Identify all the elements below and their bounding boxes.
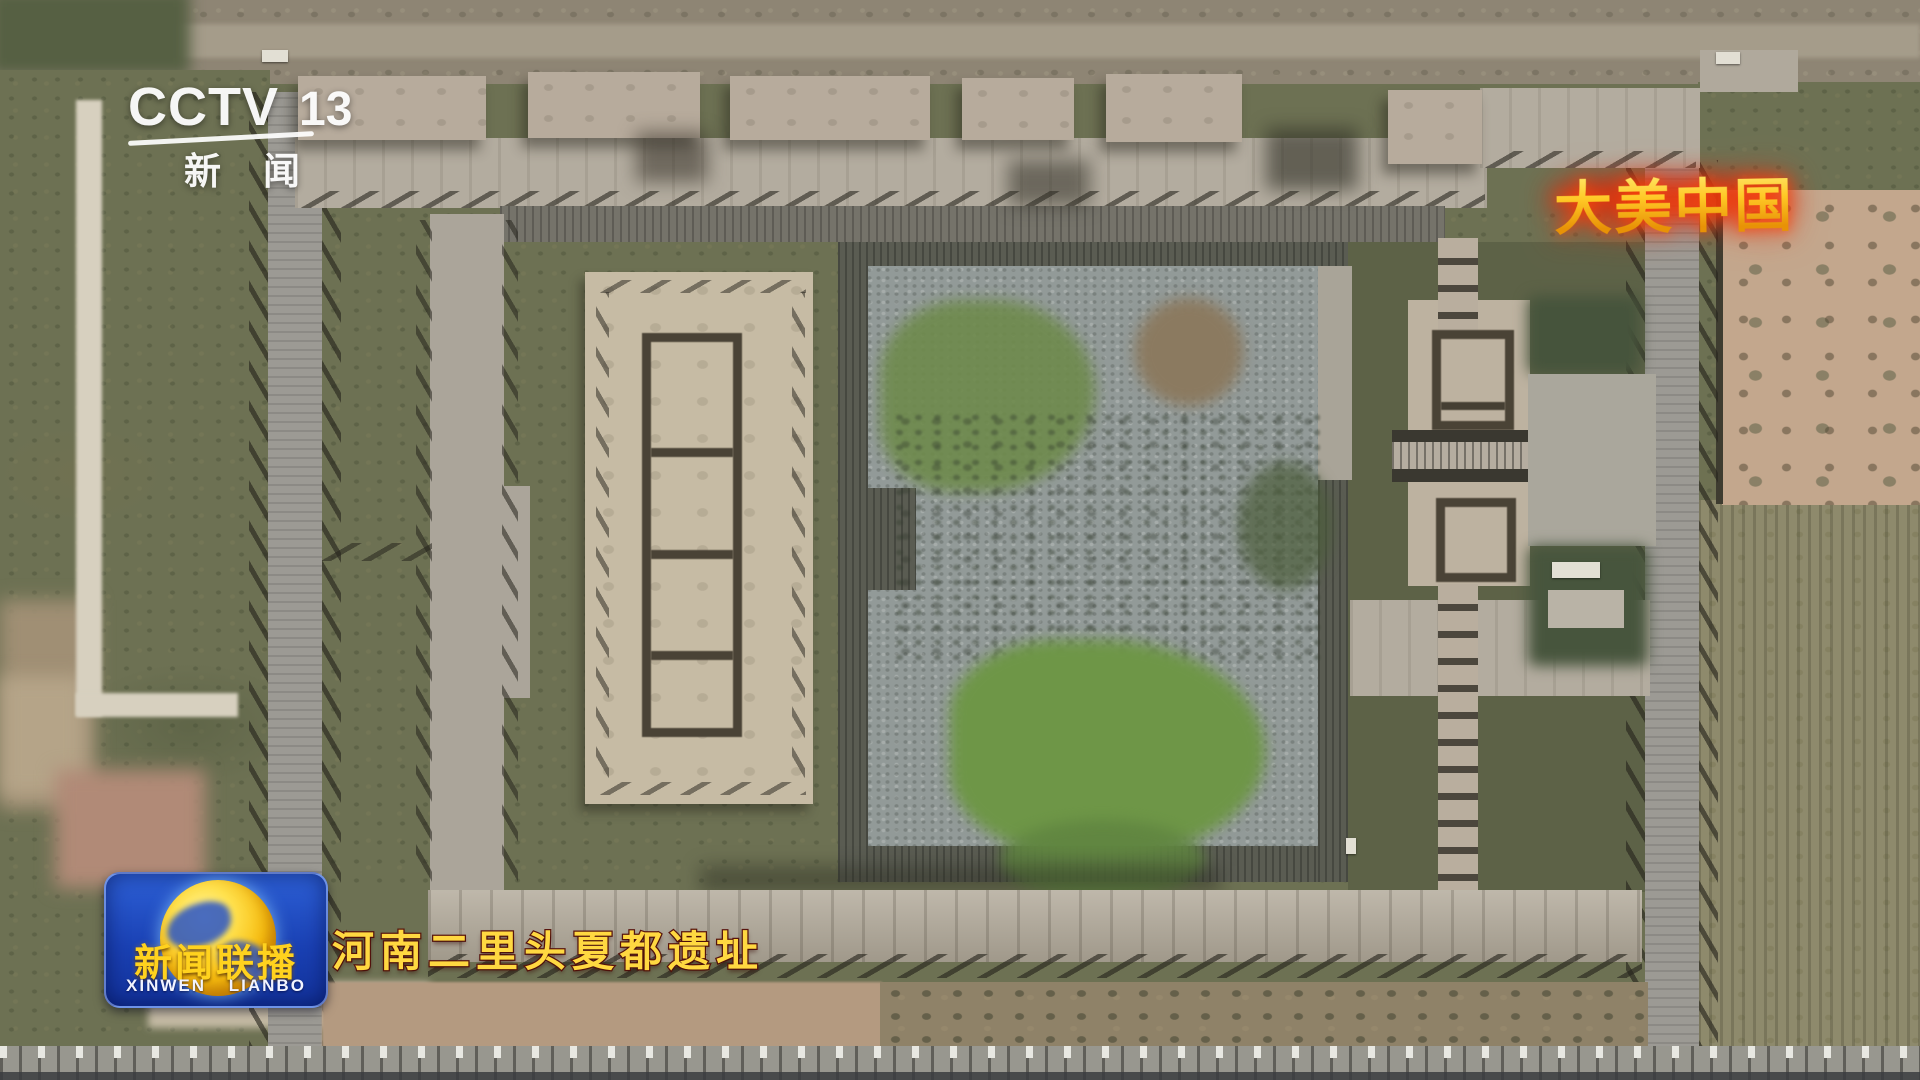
bench-gate bbox=[1552, 562, 1600, 578]
raised-platform-2 bbox=[528, 72, 700, 138]
gate-side-walkway bbox=[1528, 374, 1656, 546]
channel-number: 13 bbox=[299, 86, 352, 134]
top-road bbox=[140, 24, 1920, 58]
palace-ticks-bottom bbox=[592, 782, 806, 795]
foundation-crossbar-3 bbox=[651, 651, 733, 660]
ruin-spot-2 bbox=[1008, 160, 1090, 206]
courtyard-border-top bbox=[838, 242, 1348, 266]
gate-foundation-2 bbox=[1436, 498, 1516, 582]
left-wall-ticks-right bbox=[502, 220, 518, 884]
foundation-crossbar-2 bbox=[651, 550, 733, 559]
program-subtitle: XINWEN LIANBO bbox=[106, 976, 326, 996]
right-boardwalk bbox=[1645, 148, 1699, 1080]
channel-bug: CCTV 13 新闻 bbox=[128, 80, 352, 190]
gate1-crossbar bbox=[1441, 402, 1505, 410]
right-pale-grass bbox=[1698, 500, 1920, 1060]
palace-ticks-right bbox=[792, 292, 805, 786]
vegetation-right-bits bbox=[1238, 462, 1333, 590]
upper-dark-boardwalk bbox=[500, 206, 1445, 242]
gate-ladder-lower bbox=[1438, 584, 1478, 890]
raised-platform-6 bbox=[1388, 90, 1482, 164]
bench-top-right bbox=[1716, 52, 1740, 64]
palace-ticks-left bbox=[596, 292, 609, 786]
ruin-spot-1 bbox=[636, 132, 708, 182]
ruin-spot-3 bbox=[1266, 128, 1358, 190]
gate-foundation-1 bbox=[1432, 330, 1514, 430]
bottom-edge-band bbox=[0, 1072, 1920, 1080]
bench-courtyard bbox=[1346, 838, 1356, 854]
channel-subtitle: 新闻 bbox=[184, 153, 352, 190]
gate-veg-square-top bbox=[1528, 296, 1640, 374]
top-left-grass bbox=[0, 0, 190, 75]
brown-patch bbox=[1135, 298, 1243, 406]
broadcast-frame: CCTV 13 新闻 大美中国 新闻联播 XINWEN LIANBO 河南二里头… bbox=[0, 0, 1920, 1080]
foundation-crossbar-1 bbox=[651, 448, 733, 457]
program-logo: 新闻联播 XINWEN LIANBO bbox=[104, 872, 328, 1008]
red-dirt-patch bbox=[55, 770, 205, 888]
wall-shadow-strip bbox=[700, 866, 1220, 892]
bottom-dirt-left bbox=[322, 982, 882, 1048]
raised-platform-5 bbox=[1106, 74, 1242, 142]
bottom-dirt-right bbox=[880, 982, 1648, 1048]
channel-name: CCTV bbox=[128, 80, 279, 134]
gate-ladder-upper bbox=[1438, 238, 1478, 332]
gate-slab bbox=[1548, 590, 1624, 628]
right-boardwalk-ticks-right bbox=[1699, 160, 1718, 1080]
raised-platform-3 bbox=[730, 76, 930, 140]
palace-ticks-top bbox=[592, 280, 806, 293]
left-wall bbox=[430, 214, 504, 890]
left-connector-path bbox=[322, 543, 432, 561]
courtyard-right-upper-walk bbox=[1318, 266, 1352, 480]
raised-platform-4 bbox=[962, 78, 1074, 140]
foundation-outline bbox=[642, 333, 742, 737]
topright-walkway-stub bbox=[1700, 50, 1798, 92]
field-path-horizontal bbox=[76, 693, 238, 717]
field-path-vertical bbox=[76, 100, 102, 716]
corner-badge: 大美中国 bbox=[1553, 158, 1794, 246]
caption-text: 河南二里头夏都遗址 bbox=[332, 918, 764, 979]
bench-top-left bbox=[262, 50, 288, 62]
